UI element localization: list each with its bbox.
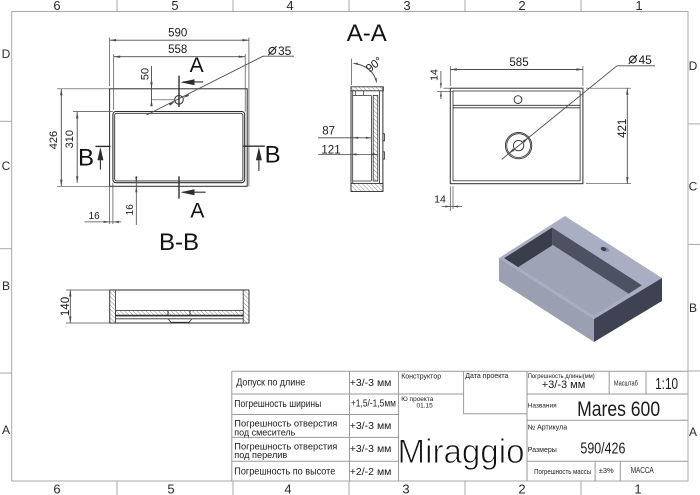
svg-text:МАССА: МАССА	[631, 465, 654, 475]
svg-text:B: B	[2, 279, 10, 293]
svg-text:01.15: 01.15	[416, 402, 433, 409]
svg-text:Погрешность ширины: Погрешность ширины	[234, 399, 321, 410]
svg-text:14: 14	[434, 193, 446, 205]
svg-text:558: 558	[168, 44, 187, 56]
svg-text:16: 16	[89, 211, 101, 222]
svg-text:A: A	[2, 423, 10, 437]
svg-text:590: 590	[168, 28, 187, 40]
svg-text:2: 2	[518, 0, 525, 13]
svg-text:1: 1	[634, 482, 641, 495]
svg-text:2: 2	[518, 482, 525, 495]
svg-text:Дата проекта: Дата проекта	[465, 373, 508, 380]
svg-text:121: 121	[321, 144, 340, 156]
svg-text:A: A	[689, 425, 697, 439]
svg-text:±3%: ±3%	[599, 466, 614, 475]
svg-text:D: D	[2, 47, 11, 61]
svg-text:16: 16	[125, 204, 136, 216]
svg-text:Mares 600: Mares 600	[577, 398, 660, 421]
svg-text:Названия: Названия	[528, 402, 557, 409]
svg-text:3: 3	[402, 482, 409, 495]
svg-text:D: D	[689, 59, 698, 73]
svg-text:6: 6	[53, 482, 60, 495]
svg-text:C: C	[2, 159, 11, 173]
svg-text:310: 310	[64, 130, 76, 148]
svg-text:1: 1	[635, 0, 642, 13]
svg-text:A-A: A-A	[347, 20, 387, 47]
svg-text:№ Артикула: № Артикула	[528, 424, 568, 431]
svg-text:Погрешность по высоте: Погрешность по высоте	[234, 467, 335, 478]
svg-text:6: 6	[53, 0, 60, 13]
svg-text:Конструктор: Конструктор	[401, 373, 441, 380]
svg-text:B: B	[689, 301, 697, 315]
svg-text:A: A	[190, 200, 204, 223]
svg-text:35: 35	[278, 44, 292, 58]
svg-text:C: C	[689, 179, 698, 193]
svg-text:585: 585	[509, 57, 528, 69]
svg-text:Допуск по длине: Допуск по длине	[236, 377, 305, 388]
svg-text:Погрешность массы: Погрешность массы	[534, 467, 591, 476]
svg-text:+3/-3 мм: +3/-3 мм	[350, 377, 392, 389]
svg-text:Размеры: Размеры	[528, 447, 557, 454]
svg-text:1:10: 1:10	[655, 376, 678, 393]
svg-text:590/426: 590/426	[580, 441, 625, 458]
svg-text:5: 5	[171, 0, 178, 13]
svg-text:5: 5	[167, 482, 174, 495]
svg-text:+3/-3 мм: +3/-3 мм	[542, 379, 586, 391]
svg-text:421: 421	[617, 119, 629, 138]
svg-text:45: 45	[639, 53, 653, 67]
svg-text:+1,5/-1,5мм: +1,5/-1,5мм	[351, 397, 396, 409]
svg-text:A: A	[190, 54, 204, 77]
svg-text:Miraggio: Miraggio	[398, 433, 525, 471]
svg-text:+2/-2 мм: +2/-2 мм	[350, 466, 392, 478]
svg-text:Масштаб: Масштаб	[614, 380, 638, 388]
svg-text:+3/-3 мм: +3/-3 мм	[350, 443, 392, 455]
svg-text:426: 426	[48, 131, 60, 149]
svg-text:под перелив: под перелив	[234, 450, 287, 461]
svg-text:4: 4	[286, 0, 293, 13]
svg-text:4: 4	[284, 482, 291, 495]
svg-text:B: B	[265, 142, 281, 169]
svg-text:90°: 90°	[364, 55, 385, 75]
svg-text:3: 3	[403, 0, 410, 13]
svg-text:50: 50	[139, 68, 151, 80]
svg-text:B-B: B-B	[159, 229, 199, 256]
svg-text:140: 140	[60, 297, 72, 316]
svg-text:+3/-3 мм: +3/-3 мм	[350, 420, 392, 432]
svg-text:87: 87	[322, 126, 335, 138]
svg-text:14: 14	[429, 69, 441, 81]
svg-text:под смеситель: под смеситель	[234, 427, 295, 438]
svg-text:B: B	[78, 145, 94, 172]
